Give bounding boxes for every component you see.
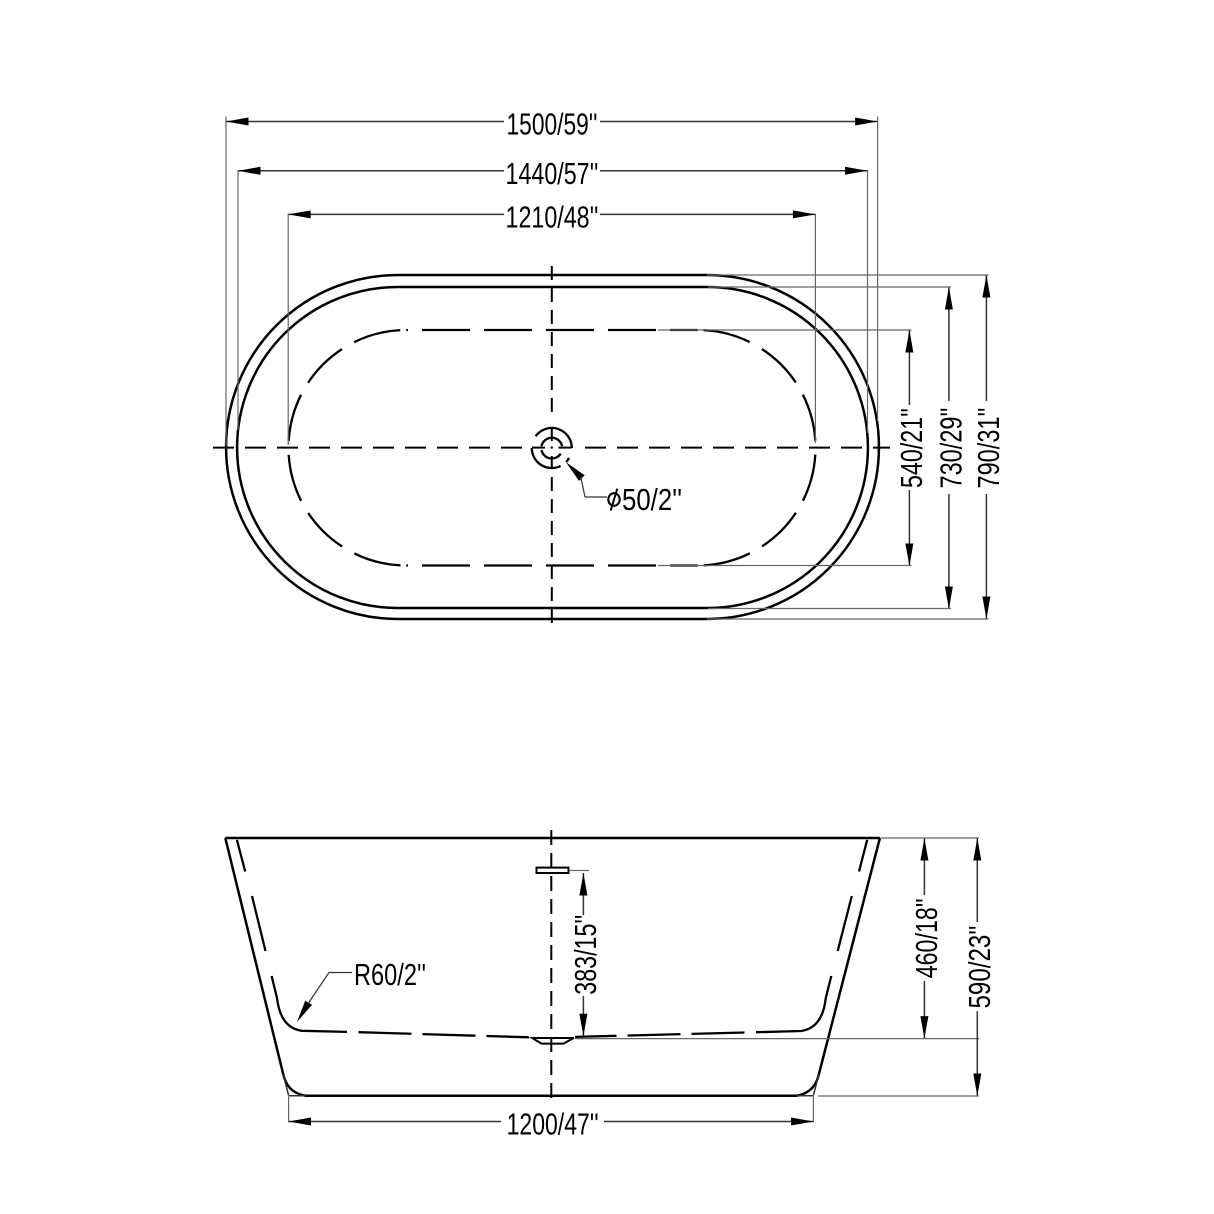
svg-text:50/2'': 50/2'': [622, 482, 682, 517]
svg-text:383/15'': 383/15'': [568, 915, 603, 995]
svg-text:1200/47'': 1200/47'': [507, 1107, 599, 1142]
svg-text:R60/2'': R60/2'': [354, 957, 426, 992]
svg-text:1440/57'': 1440/57'': [506, 156, 599, 191]
svg-text:730/29'': 730/29'': [934, 408, 969, 489]
svg-text:590/23'': 590/23'': [962, 926, 997, 1009]
svg-text:540/21'': 540/21'': [894, 408, 929, 488]
svg-text:790/31'': 790/31'': [971, 408, 1006, 489]
svg-text:1210/48'': 1210/48'': [506, 199, 599, 234]
svg-text:1500/59'': 1500/59'': [507, 107, 598, 142]
svg-text:460/18'': 460/18'': [909, 898, 944, 978]
